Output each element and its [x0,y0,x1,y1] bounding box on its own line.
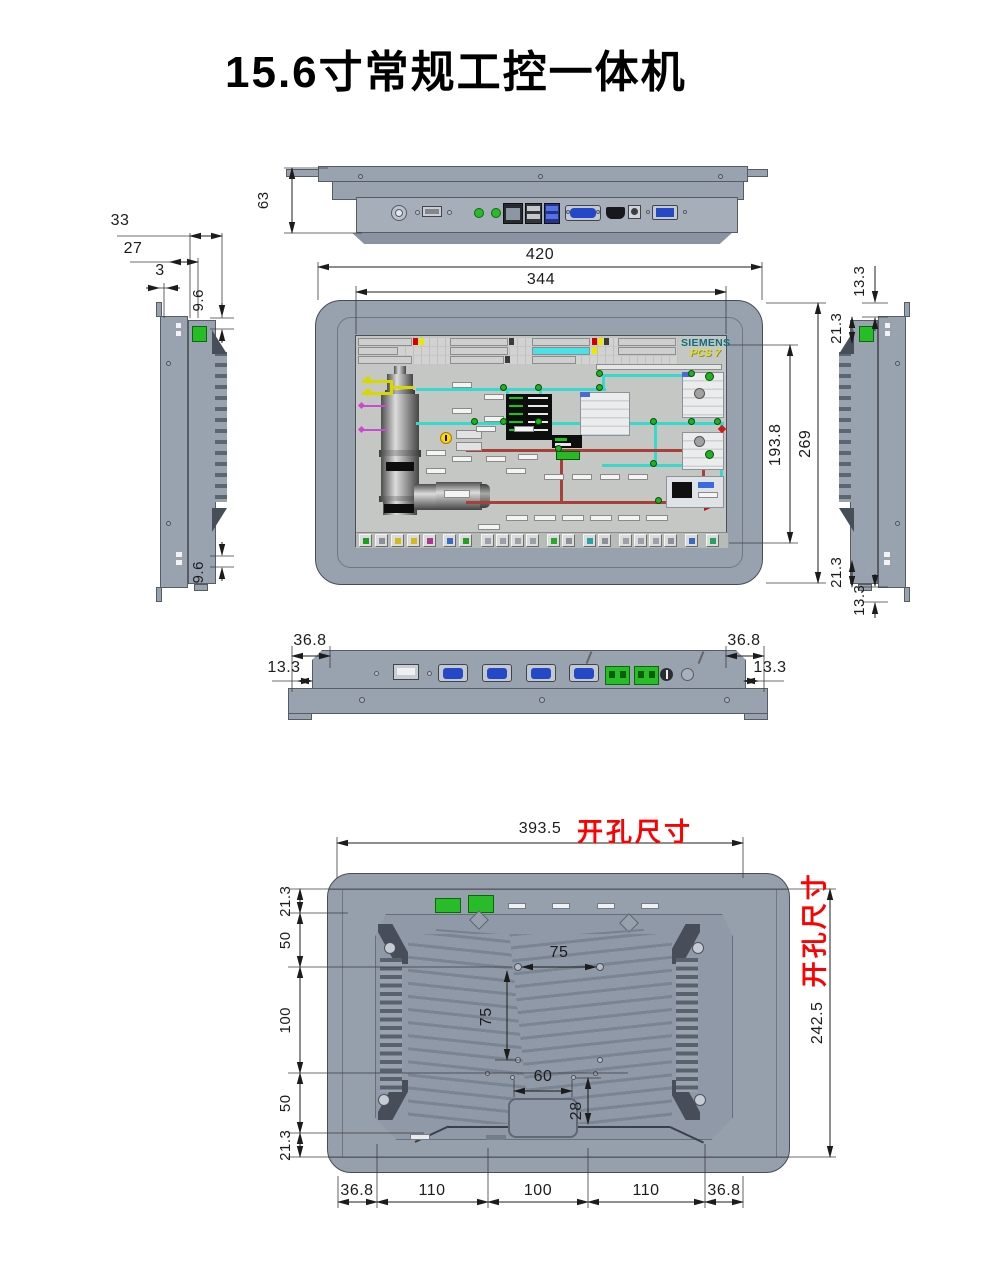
toolbar-button [407,534,420,547]
dim-rear-bottom-3: 100 [514,1182,562,1200]
dim-screen-width: 344 [506,271,576,289]
power-button-inner [395,209,403,217]
toolbar-button [706,534,719,547]
chassis-taper [340,233,744,244]
terminal-hole [649,671,655,678]
pump-gray [694,436,705,447]
dim-bottom-right-flange: 13.3 [748,659,792,677]
chevron-right [508,934,672,1124]
pump-gray [694,388,705,399]
chamfer [212,330,227,354]
dim-lower-hole-height: 28 [568,1083,586,1139]
dim-left-box: 27 [113,240,153,258]
dim-cutout-width: 393.5 [498,820,582,838]
dim-rear-bottom-5: 36.8 [700,1182,748,1200]
screw [358,174,363,179]
alarm-indicator-yellow [592,347,597,354]
valve-green [650,418,657,425]
toolbar-button [496,534,509,547]
terminal-connector [192,326,207,342]
alarm-bar [618,338,676,346]
chevron-fins [408,934,672,1124]
value-box [544,474,564,480]
vent-slot [176,331,181,336]
dim-rear-bottom-2: 110 [408,1182,456,1200]
valve-green [650,460,657,467]
dim-lower-hole-width: 60 [528,1068,558,1086]
value-box [514,426,534,432]
value-box [534,515,556,521]
dim-left-top-offset: 9.6 [191,272,208,328]
data-text-green [555,438,567,441]
valve-green [596,370,603,377]
screw-hole [683,210,687,214]
page-title: 15.6寸常规工控一体机 [225,36,687,100]
mount-screw-hole [384,942,396,954]
vent-slot [885,323,890,328]
body-line [328,889,789,890]
valve-green [688,418,695,425]
screw [718,174,723,179]
value-box [628,474,648,480]
access-hole [681,668,694,681]
dim-cutout-height: 242.5 [809,993,827,1053]
vesa-hole [514,963,522,971]
flange-tab [156,302,162,317]
technical-drawing: 15.6寸常规工控一体机 [0,0,1000,1273]
front-panel-edge [878,316,906,588]
pump-green [705,450,714,459]
alarm-bar [358,347,398,355]
flange-tab [904,587,910,602]
alarm-bar [532,356,576,364]
pipe-cyan [416,388,606,391]
screw [166,361,171,366]
body-line [776,890,777,1157]
vent-slot [884,560,890,565]
led-hole [427,671,432,676]
toolbar-button [526,534,539,547]
value-box [426,468,446,474]
value-box [590,515,612,521]
vessel-body [381,394,419,452]
value-box [698,492,718,498]
alarm-indicator-yellow [419,338,424,345]
pipe-yellow [392,386,414,389]
terminal-hole [620,671,626,678]
vesa-hole [597,1057,603,1063]
heatsink-fins [839,352,851,502]
rear-box-edge [850,320,878,584]
mount-tab [744,713,768,720]
terminal-hole [609,671,615,678]
toolbar-button [583,534,596,547]
usb-slot [397,668,415,675]
pump-green [705,372,714,381]
value-box [506,468,526,474]
dim-front-width: 420 [505,246,575,264]
toolbar-button [459,534,472,547]
mount-tab [746,169,768,177]
value-box [426,450,446,456]
mount-hole [485,1071,490,1076]
cutout-label-right: 开孔尺寸 [801,854,830,1004]
run-button [556,451,580,460]
body-line [328,1157,789,1158]
toolbar-button [649,534,662,547]
terminal-hole [638,671,644,678]
screw [895,521,900,526]
dim-bottom-left-flange: 13.3 [262,659,306,677]
dim-left-panel: 3 [148,262,172,280]
dim-vesa-height: 75 [478,989,496,1045]
mode-button [456,442,482,451]
dim-front-height: 269 [797,414,815,474]
serial-db9-port [574,668,594,679]
dim-rear-chain-2: 50 [278,912,295,968]
led-hole [374,671,379,676]
alarm-bar [450,347,508,355]
vent-slot [410,1134,430,1140]
toolbar-button [391,534,404,547]
vessel-tag [384,504,414,513]
screw [539,697,545,703]
valve-magenta [358,426,365,433]
alarm-bar [450,356,504,364]
vga-port [570,208,596,218]
dim-bottom-right-inset: 36.8 [720,632,768,650]
dim-left-bottom-offset: 9.6 [191,544,208,600]
alarm-indicator-dark [604,338,609,345]
vent-slot [508,903,526,909]
dim-right-bottom-inset: 21.3 [829,544,846,600]
led-hole [646,210,650,214]
usb-slot [527,214,540,219]
valve-green [500,418,507,425]
vga-screw [596,210,600,214]
usb-slot [527,206,540,211]
antenna-connector [491,208,501,218]
heatsink-fins [215,352,227,502]
toolbar-button [443,534,456,547]
alarm-bar [450,338,508,346]
screw [359,697,365,703]
led-hole [415,210,420,215]
dim-rear-bottom-1: 36.8 [333,1182,381,1200]
value-box [452,456,472,462]
dim-right-top-flange: 13.3 [852,253,869,309]
toolbar-button [547,534,560,547]
vesa-hole [515,1057,521,1063]
led-hole [447,210,452,215]
top-flange [318,166,748,182]
vent-slot [884,552,890,557]
dim-top-depth: 63 [256,172,273,228]
value-box [518,454,538,460]
screw [895,361,900,366]
dc-jack [631,208,638,215]
dim-rear-chain-3: 100 [278,992,295,1048]
alarm-bar [618,347,676,355]
valve-green [500,384,507,391]
power-switch-bar [666,670,668,679]
terminal-connector [435,898,461,913]
pipe-cyan [416,422,724,425]
usb-slot [425,209,439,214]
vent-slot [552,903,570,909]
terminal-connector [468,895,494,913]
vga-screw [566,210,570,214]
serial-db9-port [443,668,463,679]
alarm-bar [532,338,590,346]
vent-slot [176,323,181,328]
vent-slot-dark [486,1135,506,1140]
mount-hole [593,1071,598,1076]
mount-tab [286,169,320,177]
toolbar-button [685,534,698,547]
value-box [484,394,504,400]
toolbar-button [481,534,494,547]
hdmi-port [606,207,625,219]
toolbar-button [562,534,575,547]
vent-slot [641,903,659,909]
dim-left-total: 33 [100,212,140,230]
flange-tab [156,587,162,602]
vessel-tag [386,462,414,471]
valve-green [688,370,695,377]
pcs7-logo: PCS 7 [690,347,720,359]
valve-green [535,384,542,391]
faceplate-tab [580,392,590,397]
toolbar-button [511,534,524,547]
toolbar-button [375,534,388,547]
dim-rear-bottom-4: 110 [622,1182,670,1200]
antenna-connector [474,208,484,218]
mount-tab [288,713,312,720]
valve-green [596,384,603,391]
terminal-connector [859,326,874,342]
vesa-hole [596,963,604,971]
value-box [646,515,668,521]
front-panel-edge [160,316,188,588]
value-box [486,456,506,462]
mount-hole [571,1075,576,1080]
dim-vesa-width: 75 [544,944,574,962]
mount-hole [510,1075,515,1080]
trend-display [672,482,692,498]
valve-magenta [358,402,365,409]
valve-green [714,418,721,425]
trend-value [698,482,714,488]
toolbar-button [359,534,372,547]
scada-screen: SIEMENS PCS 7 [355,335,727,547]
body-line [342,890,343,1157]
value-box [478,524,500,530]
alarm-bar [358,338,412,346]
serial-db9-port [531,668,551,679]
alarm-indicator-red [592,338,597,345]
screw [538,174,543,179]
toolbar-button [619,534,632,547]
alarm-indicator-red [413,338,418,345]
mount-screw-hole [694,1094,706,1106]
ethernet-inner [506,208,520,220]
screw [166,521,171,526]
dim-bottom-left-inset: 36.8 [286,632,334,650]
mount-screw-hole [692,942,704,954]
value-box [452,408,472,414]
cutout-label-top: 开孔尺寸 [577,812,693,849]
usb-slot [546,214,558,219]
value-box [476,426,496,432]
value-box [562,515,584,521]
alarm-indicator-dark [505,356,510,363]
value-box [572,474,592,480]
vent-slot [176,552,182,557]
dim-right-top-inset: 21.3 [829,300,846,356]
serial-port [656,208,674,217]
toolbar-button [664,534,677,547]
fin-stack-left [380,958,402,1092]
valve-green [655,497,662,504]
vent-slot [885,331,890,336]
usb-slot [546,206,558,211]
screw [724,697,730,703]
alarm-bar [358,356,412,364]
value-box [506,515,528,521]
dim-screen-height: 193.8 [767,415,785,475]
valve-green [555,445,562,452]
faceplate-panel [580,392,630,436]
value-box [600,474,620,480]
toolbar-button [598,534,611,547]
dim-right-bottom-flange: 13.3 [852,572,869,628]
vessel-cap [480,484,490,508]
alarm-bar-active [532,347,590,355]
fin-stack-right [676,958,698,1092]
value-box [452,382,472,388]
valve-green [471,418,478,425]
status-strip [596,364,722,370]
valve-green [535,418,542,425]
value-box [444,490,470,498]
value-box [618,515,640,521]
warning-mark [445,435,447,441]
alarm-indicator-yellow [598,338,603,345]
serial-db9-port [487,668,507,679]
vent-slot [597,903,615,909]
vent-slot [176,560,182,565]
mount-screw-hole [378,1094,390,1106]
alarm-indicator-dark [509,338,514,345]
dim-rear-chain-5: 21.3 [278,1117,295,1173]
flange-tab [904,302,910,317]
toolbar-button [634,534,647,547]
toolbar-button [423,534,436,547]
